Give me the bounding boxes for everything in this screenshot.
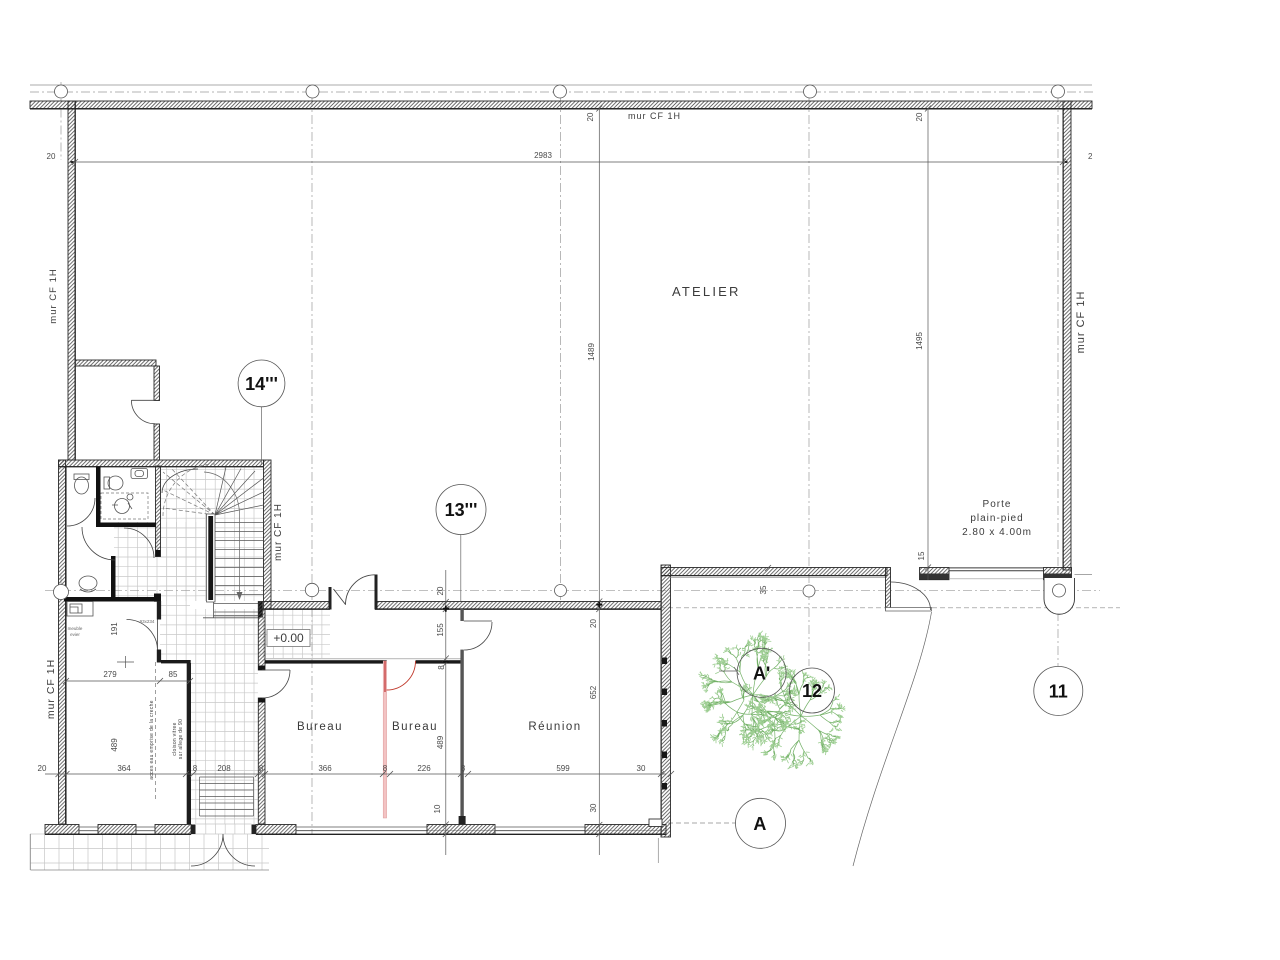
svg-text:2: 2 [1088,152,1093,161]
svg-text:12: 12 [802,681,822,701]
svg-text:mur CF 1H: mur CF 1H [1075,291,1087,354]
svg-text:208: 208 [217,764,231,773]
svg-text:279: 279 [103,670,117,679]
svg-text:Bureau: Bureau [392,721,438,733]
svg-text:93x234: 93x234 [140,619,155,624]
svg-text:489: 489 [436,735,445,749]
svg-text:sur allege de 90: sur allege de 90 [178,719,184,759]
svg-text:226: 226 [417,764,431,773]
svg-text:8: 8 [383,764,388,773]
svg-text:20: 20 [38,764,47,773]
svg-text:364: 364 [117,764,131,773]
svg-text:11: 11 [1049,682,1068,702]
svg-text:mur CF 1H: mur CF 1H [48,268,59,323]
svg-text:8: 8 [461,764,466,773]
svg-text:652: 652 [589,685,598,699]
svg-text:2.80 x 4.00m: 2.80 x 4.00m [962,527,1032,538]
svg-text:8: 8 [259,764,264,773]
svg-text:85: 85 [169,670,178,679]
svg-text:13''': 13''' [445,500,478,520]
svg-text:mur CF 1H: mur CF 1H [628,111,681,121]
svg-text:1489: 1489 [587,343,596,361]
svg-text:20: 20 [436,586,445,595]
svg-text:+0.00: +0.00 [273,631,304,645]
svg-text:155: 155 [436,623,445,637]
svg-text:191: 191 [110,622,119,636]
svg-text:8: 8 [193,764,198,773]
svg-text:A': A' [753,664,770,684]
svg-text:20: 20 [586,112,595,121]
svg-text:10: 10 [433,804,442,813]
svg-text:acces eau emprise de la creche: acces eau emprise de la creche [149,700,155,780]
svg-text:mur CF 1H: mur CF 1H [273,503,284,561]
svg-text:20: 20 [915,112,924,121]
svg-text:30: 30 [637,764,646,773]
svg-text:35: 35 [759,585,768,594]
svg-text:20: 20 [589,619,598,628]
svg-text:366: 366 [318,764,332,773]
svg-text:evier: evier [70,632,80,637]
svg-text:Bureau: Bureau [297,721,343,733]
svg-text:plain-pied: plain-pied [970,513,1023,524]
svg-text:ATELIER: ATELIER [672,284,741,299]
svg-text:599: 599 [556,764,570,773]
svg-text:Réunion: Réunion [528,721,581,733]
svg-text:8: 8 [437,665,446,670]
svg-text:Porte: Porte [983,499,1012,510]
svg-text:30: 30 [589,803,598,812]
svg-text:15: 15 [917,551,926,560]
svg-text:meuble: meuble [68,626,83,631]
svg-text:2983: 2983 [534,151,552,160]
svg-text:1495: 1495 [915,332,924,350]
svg-text:A: A [753,814,766,834]
svg-text:489: 489 [110,738,119,752]
svg-text:mur CF 1H: mur CF 1H [45,659,57,719]
svg-text:14''': 14''' [245,374,278,394]
svg-text:20: 20 [47,152,56,161]
